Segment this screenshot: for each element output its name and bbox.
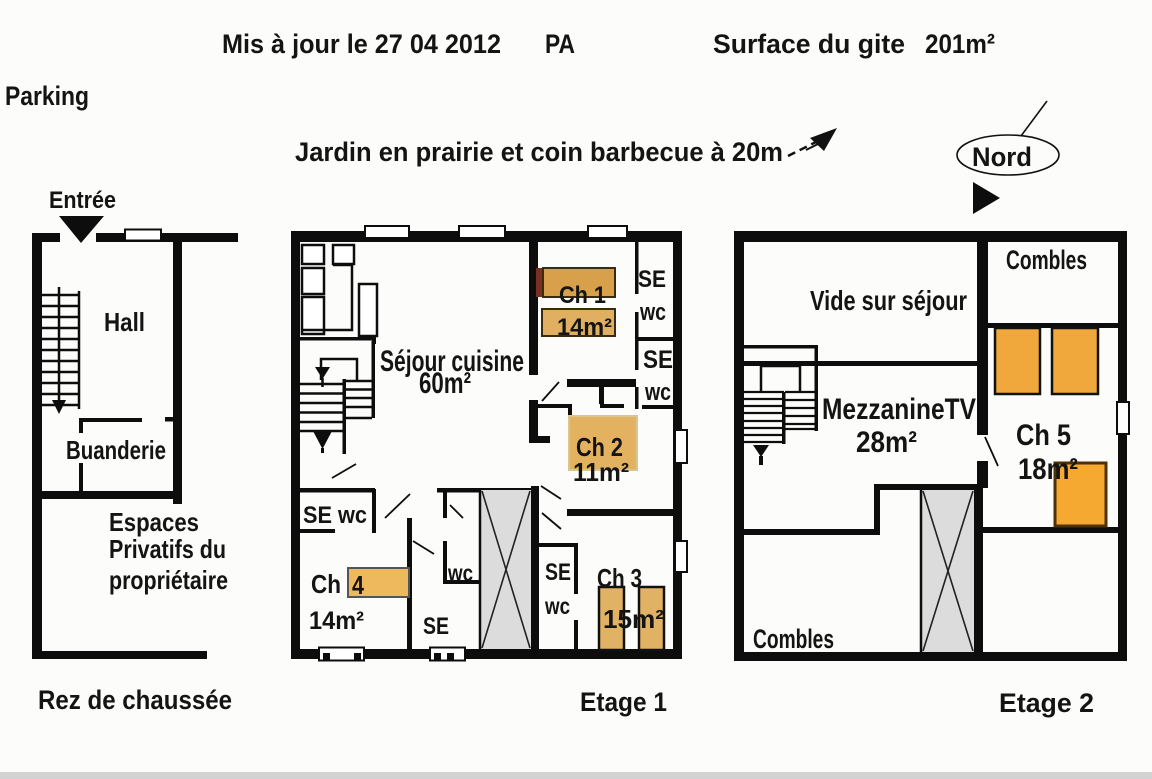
svg-text:MezzanineTV: MezzanineTV xyxy=(822,393,976,426)
svg-text:Ch: Ch xyxy=(311,569,341,599)
svg-text:4: 4 xyxy=(352,570,364,600)
svg-text:Surface du gite: Surface du gite xyxy=(713,29,905,59)
svg-text:wc: wc xyxy=(644,379,671,406)
svg-text:SE: SE xyxy=(638,266,666,293)
svg-text:14m²: 14m² xyxy=(557,314,612,341)
svg-text:18m²: 18m² xyxy=(1018,453,1078,486)
svg-text:Privatifs du: Privatifs du xyxy=(109,534,226,564)
svg-text:Rez de chaussée: Rez de chaussée xyxy=(38,685,232,715)
svg-text:Entrée: Entrée xyxy=(49,187,116,214)
svg-text:Etage 1: Etage 1 xyxy=(580,687,667,717)
svg-text:wc: wc xyxy=(639,299,666,326)
svg-text:Hall: Hall xyxy=(104,307,145,337)
svg-text:SE: SE xyxy=(423,613,449,640)
svg-text:Parking: Parking xyxy=(5,81,89,111)
svg-text:28m²: 28m² xyxy=(856,426,917,459)
svg-text:Jardin en prairie et coin barb: Jardin en prairie et coin barbecue à 20m xyxy=(295,137,783,167)
svg-text:propriétaire: propriétaire xyxy=(109,565,228,595)
svg-text:11m²: 11m² xyxy=(573,457,629,487)
svg-text:Mis à jour le 27 04 2012: Mis à jour le 27 04 2012 xyxy=(222,29,501,59)
svg-text:SE: SE xyxy=(545,559,571,586)
svg-text:Espaces: Espaces xyxy=(109,507,199,537)
svg-text:PA: PA xyxy=(545,29,575,59)
svg-text:Ch 5: Ch 5 xyxy=(1016,419,1071,452)
svg-text:wc: wc xyxy=(544,593,570,619)
svg-text:15m²: 15m² xyxy=(603,604,664,634)
svg-text:201m²: 201m² xyxy=(925,29,995,59)
svg-text:Combles: Combles xyxy=(1006,245,1087,275)
svg-text:Ch 1: Ch 1 xyxy=(559,282,606,309)
svg-text:Vide sur séjour: Vide sur séjour xyxy=(810,285,967,316)
svg-text:Buanderie: Buanderie xyxy=(66,435,166,465)
svg-text:60m²: 60m² xyxy=(419,367,471,400)
svg-text:wc: wc xyxy=(447,560,473,586)
svg-text:14m²: 14m² xyxy=(309,607,364,635)
svg-text:Combles: Combles xyxy=(753,624,834,654)
svg-text:Etage 2: Etage 2 xyxy=(999,688,1094,718)
svg-text:Ch 3: Ch 3 xyxy=(597,563,642,593)
svg-text:Nord: Nord xyxy=(972,142,1032,172)
svg-text:SE: SE xyxy=(643,346,673,374)
svg-text:SE wc: SE wc xyxy=(303,502,367,529)
